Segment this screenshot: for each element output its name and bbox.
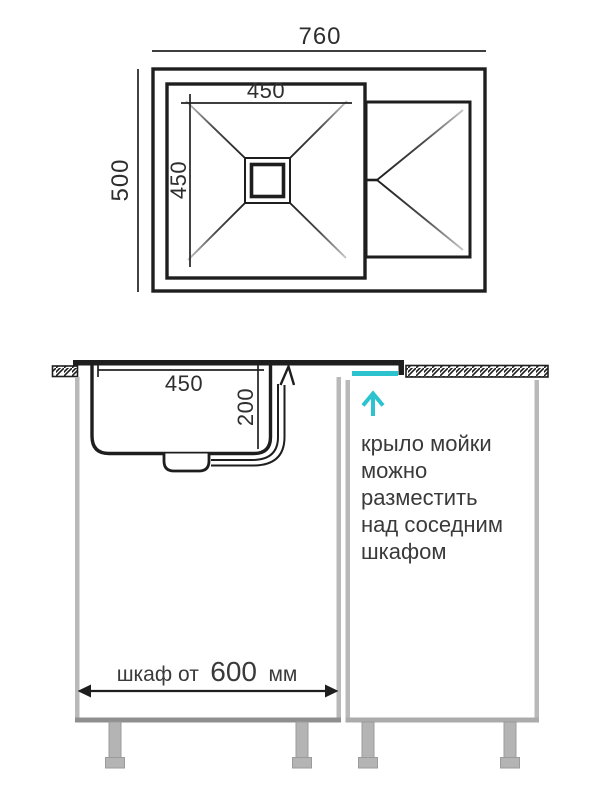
section-view: 450 200 крыло мойки можно разместить над… bbox=[53, 360, 549, 768]
bowl-slope-line-br bbox=[288, 201, 346, 258]
cabinet-dim-suffix: мм bbox=[268, 663, 297, 686]
bowl-slope-line-bl bbox=[188, 201, 247, 260]
cabinet-leg bbox=[293, 722, 312, 768]
dim-label-bowl-inner-width: 450 bbox=[165, 371, 203, 396]
right-cabinet-right-wall bbox=[535, 380, 540, 718]
annotation-line: можно bbox=[361, 458, 427, 483]
right-cabinet-left-wall bbox=[346, 380, 351, 718]
drainboard-crease-upper bbox=[377, 110, 463, 180]
dim-label-bowl-depth: 450 bbox=[166, 161, 191, 199]
drain-inner-square bbox=[252, 165, 284, 197]
bowl-slope-line-tr bbox=[288, 101, 347, 160]
top-view: 760 500 450 450 bbox=[107, 23, 486, 292]
cabinet-legs bbox=[106, 722, 520, 768]
dim-label-overall-width: 760 bbox=[298, 23, 341, 50]
cabinet-width-dimension: шкаф от 600 мм bbox=[78, 656, 339, 698]
cabinet-dim-value: 600 bbox=[210, 656, 257, 687]
cabinet-dim-prefix: шкаф от bbox=[117, 663, 200, 686]
annotation-line: разместить bbox=[361, 485, 478, 510]
annotation-line: шкафом bbox=[361, 539, 446, 564]
sink-installation-diagram: 760 500 450 450 bbox=[0, 0, 600, 800]
wing-edge-flap bbox=[281, 367, 295, 386]
cabinet-leg bbox=[501, 722, 520, 768]
annotation-text: крыло мойки можно разместить над соседни… bbox=[361, 431, 503, 564]
drainboard-outline-top bbox=[366, 102, 470, 257]
dim-label-cabinet-width: шкаф от 600 мм bbox=[117, 656, 298, 687]
drainboard-crease-lower bbox=[377, 180, 463, 250]
dim-label-bowl-height: 200 bbox=[233, 388, 258, 426]
bowl-slope-line-tl bbox=[186, 101, 247, 160]
annotation-line: крыло мойки bbox=[361, 431, 492, 456]
countertop-left-hatch bbox=[53, 366, 78, 377]
sink-rim-right-flange bbox=[399, 360, 405, 375]
dim-arrowhead-left bbox=[78, 685, 92, 698]
drain-bump-section bbox=[164, 454, 209, 472]
dim-arrowhead-right bbox=[325, 685, 339, 698]
diagram-canvas: 760 500 450 450 bbox=[0, 0, 600, 800]
left-cabinet-left-wall bbox=[75, 377, 80, 718]
annotation-line: над соседним bbox=[361, 512, 503, 537]
left-cabinet bbox=[75, 377, 341, 723]
dim-label-overall-depth: 500 bbox=[107, 158, 134, 201]
dim-label-bowl-width: 450 bbox=[247, 78, 285, 103]
countertop-right-hatch bbox=[406, 366, 548, 378]
up-arrow-icon bbox=[363, 394, 383, 417]
cabinet-leg bbox=[106, 722, 125, 768]
left-cabinet-right-wall bbox=[337, 377, 342, 718]
sink-rim-section bbox=[73, 360, 404, 366]
cabinet-leg bbox=[359, 722, 378, 768]
